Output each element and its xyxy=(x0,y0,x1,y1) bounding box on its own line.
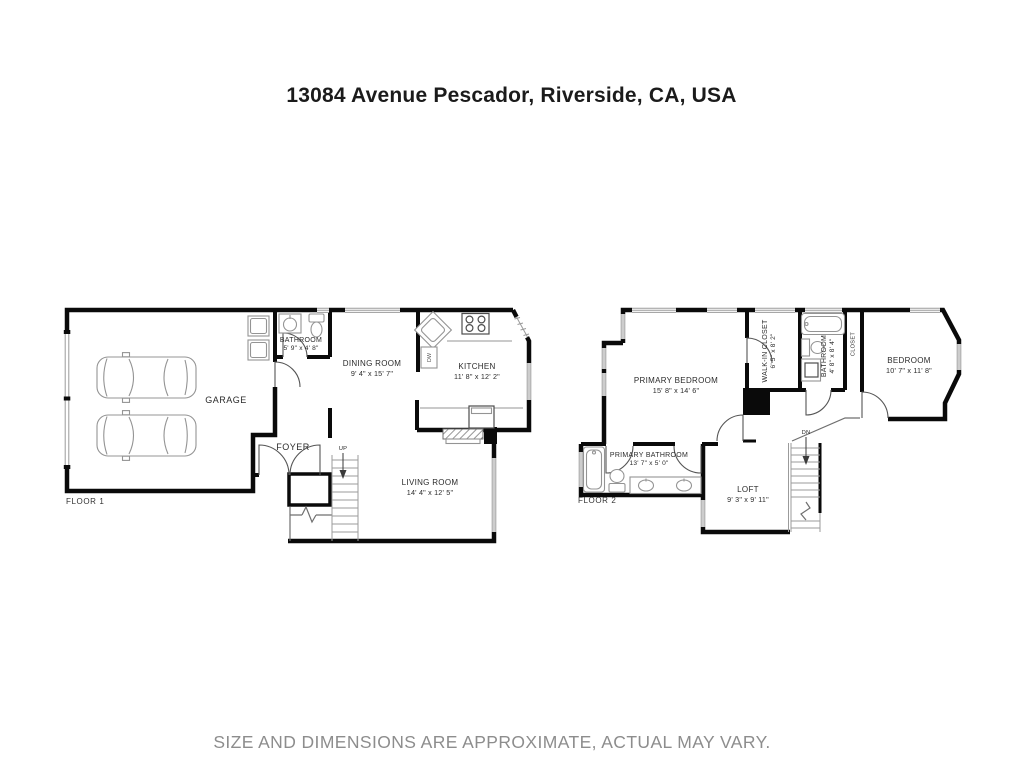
window-primary-bath xyxy=(578,452,583,487)
double-vanity-icon xyxy=(630,477,701,494)
stairs-up-label: UP xyxy=(339,446,347,452)
window-primary-left-3 xyxy=(601,373,606,396)
room-label-foyer: FOYER xyxy=(276,442,310,454)
window-primary-top-2 xyxy=(707,308,737,313)
window-kitchen-angled xyxy=(515,317,530,337)
floor2-stairs: DN xyxy=(789,430,821,532)
room-label-dining-room: DINING ROOM 9' 4" x 15' 7" xyxy=(343,359,401,379)
dishwasher-label: DW xyxy=(427,352,433,362)
kitchen-pass-through-counter xyxy=(443,429,483,444)
floor1-stairs: UP xyxy=(332,446,358,541)
floorplan-page: 13084 Avenue Pescador, Riverside, CA, US… xyxy=(0,0,1023,767)
floor1-label: FLOOR 1 xyxy=(66,497,104,506)
toilet-icon xyxy=(309,314,324,337)
dishwasher-icon: DW xyxy=(421,347,437,368)
disclaimer-text: SIZE AND DIMENSIONS ARE APPROXIMATE, ACT… xyxy=(0,732,984,753)
primary-bathtub-icon xyxy=(584,447,605,492)
window-closet-top xyxy=(755,308,795,313)
room-label-bathroom2: BATHROOM 4' 8" x 8' 4" xyxy=(820,335,838,377)
room-label-primary-bathroom: PRIMARY BATHROOM 13' 7" x 5' 0" xyxy=(610,451,688,469)
window-bathroom1 xyxy=(317,308,329,313)
garage-hall-door xyxy=(275,362,300,387)
washer-dryer-icon xyxy=(248,316,269,360)
room-label-loft: LOFT 9' 3" x 9' 11" xyxy=(727,485,769,505)
stairs-down-label: DN xyxy=(802,430,811,436)
car-icon xyxy=(97,353,196,403)
floor-plan-canvas: UP xyxy=(0,0,1023,767)
window-primary-left-1 xyxy=(620,314,625,339)
window-loft xyxy=(700,500,705,527)
stair-break-symbol xyxy=(801,502,810,520)
bedroom-door xyxy=(862,392,888,418)
stove-icon xyxy=(462,314,489,335)
vanity-sink-icon xyxy=(802,359,821,381)
room-label-closet: CLOSET xyxy=(850,332,857,356)
car-icon xyxy=(97,411,196,461)
bathtub-icon xyxy=(802,314,845,335)
window-primary-top-1 xyxy=(632,308,676,313)
window-bay-right xyxy=(956,344,961,370)
window-bedroom-top xyxy=(910,308,940,313)
up-arrow-icon xyxy=(340,470,347,479)
down-arrow-icon xyxy=(803,456,810,465)
primary-toilet-icon xyxy=(609,470,625,493)
window-living xyxy=(491,458,496,532)
room-label-bedroom: BEDROOM 10' 7" x 11' 8" xyxy=(886,356,932,376)
bathroom2-door xyxy=(806,390,831,415)
foyer-closet xyxy=(289,474,330,505)
window-primary-left-2 xyxy=(601,348,606,369)
room-label-living-room: LIVING ROOM 14' 4" x 12' 5" xyxy=(402,478,459,498)
room-label-garage: GARAGE xyxy=(205,395,247,407)
kitchen-corner-sink-icon xyxy=(415,312,452,349)
window-kitchen-side xyxy=(526,363,531,400)
room-label-bathroom1: BATHROOM 5' 9" x 4' 8" xyxy=(280,336,322,354)
window-bathroom2-top xyxy=(805,308,842,313)
sink-icon xyxy=(279,314,301,333)
primary-bedroom-door xyxy=(717,415,743,441)
floor2-label: FLOOR 2 xyxy=(578,496,616,505)
room-label-primary-bedroom: PRIMARY BEDROOM 15' 8" x 14' 6" xyxy=(634,376,718,396)
window-dining xyxy=(345,308,400,313)
floor1-fixtures: DW xyxy=(97,312,523,461)
room-label-kitchen: KITCHEN 11' 8" x 12' 2" xyxy=(454,362,500,382)
fridge-icon xyxy=(469,406,494,428)
garage-door xyxy=(64,330,71,469)
wall-break-symbol xyxy=(302,507,316,522)
room-label-walkin-closet: WALK-IN CLOSET 6' 5" x 8' 2" xyxy=(761,319,779,382)
